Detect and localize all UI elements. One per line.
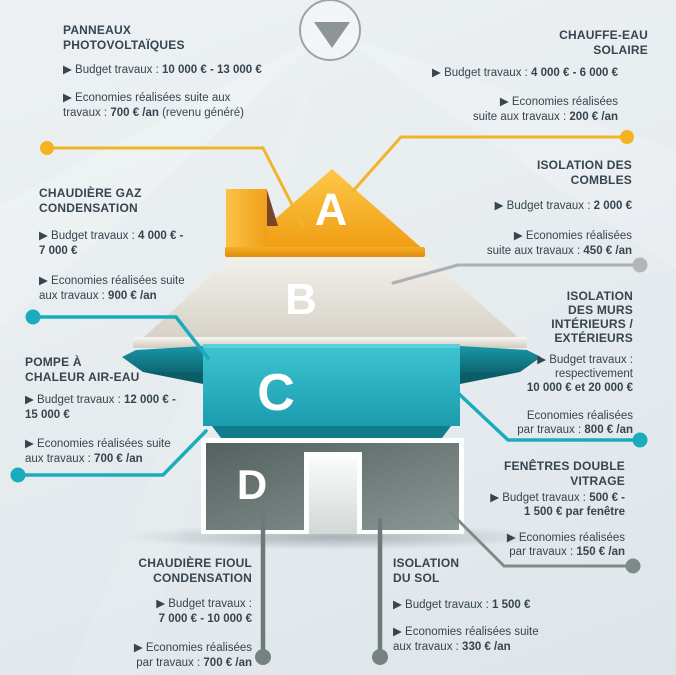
label-line: par travaux : 700 € /an — [134, 656, 252, 671]
dot-murs — [633, 433, 648, 448]
label-pompe-chaleur: POMPE À CHALEUR AIR-EAU ▶ Budget travaux… — [25, 355, 176, 467]
dot-pompe — [11, 468, 26, 483]
label-line: ▶ Economies réalisées suite — [25, 437, 176, 452]
label-line: suite aux travaux : 450 € /an — [487, 244, 632, 259]
grade-b-letter: B — [285, 275, 317, 324]
label-heading: CHAUDIÈRE FIOUL CONDENSATION — [134, 556, 252, 586]
label-line: ▶ Budget travaux : 1 500 € — [393, 598, 539, 613]
wall-c-base — [212, 426, 451, 438]
label-line: aux travaux : 700 € /an — [25, 452, 176, 467]
dot-panneaux — [40, 141, 54, 155]
label-chaudiere-fioul: CHAUDIÈRE FIOUL CONDENSATION ▶ Budget tr… — [134, 556, 252, 671]
label-heading: FENÊTRES DOUBLE VITRAGE — [490, 459, 625, 489]
door — [309, 457, 357, 534]
label-heading: POMPE À CHALEUR AIR-EAU — [25, 355, 176, 385]
label-line: ▶ Economies réalisées suite — [393, 625, 539, 640]
label-heading: ISOLATION DU SOL — [393, 556, 539, 586]
label-line: aux travaux : 900 € /an — [39, 289, 185, 304]
label-line: ▶ Budget travaux : 12 000 € - — [25, 393, 176, 408]
label-line: ▶ Economies réalisées — [490, 531, 625, 545]
grade-a-letter: A — [315, 184, 348, 235]
dot-fenetres — [626, 559, 641, 574]
wall-c-highlight — [203, 344, 460, 348]
label-fenetres-double-vitrage: FENÊTRES DOUBLE VITRAGE ▶ Budget travaux… — [490, 459, 625, 559]
label-line: travaux : 700 € /an (revenu généré) — [63, 106, 262, 121]
label-chauffe-eau-solaire: CHAUFFE-EAU SOLAIRE ▶ Budget travaux : 4… — [432, 28, 648, 125]
label-heading: ISOLATION DES COMBLES — [487, 158, 632, 188]
label-line: ▶ Budget travaux : — [517, 353, 633, 367]
label-line: par travaux : 800 € /an — [517, 423, 633, 437]
label-line: ▶ Economies réalisées suite — [39, 274, 185, 289]
label-heading: ISOLATION DES MURS INTÉRIEURS / EXTÉRIEU… — [517, 289, 633, 345]
label-line: aux travaux : 330 € /an — [393, 640, 539, 655]
label-line: ▶ Budget travaux : 4 000 € - 6 000 € — [432, 66, 618, 81]
label-line: suite aux travaux : 200 € /an — [432, 110, 618, 125]
chimney — [226, 189, 267, 250]
dot-chauffe-eau — [620, 130, 634, 144]
label-line: ▶ Budget travaux : — [134, 597, 252, 612]
label-line: respectivement — [517, 367, 633, 381]
label-line: ▶ Economies réalisées suite aux — [63, 91, 262, 106]
label-chaudiere-gaz: CHAUDIÈRE GAZ CONDENSATION ▶ Budget trav… — [39, 186, 185, 304]
label-line: ▶ Budget travaux : 500 € - — [490, 491, 625, 505]
label-heading: CHAUDIÈRE GAZ CONDENSATION — [39, 186, 185, 216]
label-line: ▶ Economies réalisées — [487, 229, 632, 244]
label-heading: PANNEAUX PHOTOVOLTAÏQUES — [63, 23, 262, 53]
eave-right-shadow — [460, 372, 520, 384]
label-line: 7 000 € — [39, 244, 185, 259]
grade-c-letter: C — [257, 364, 295, 422]
label-line: ▶ Budget travaux : 10 000 € - 13 000 € — [63, 63, 262, 78]
label-line: 7 000 € - 10 000 € — [134, 612, 252, 627]
label-isolation-murs: ISOLATION DES MURS INTÉRIEURS / EXTÉRIEU… — [517, 289, 633, 437]
label-line: 1 500 € par fenêtre — [490, 505, 625, 519]
dot-fioul — [255, 649, 271, 665]
label-isolation-sol: ISOLATION DU SOL ▶ Budget travaux : 1 50… — [393, 556, 539, 655]
roof-a-base — [225, 247, 425, 257]
label-line: ▶ Economies réalisées — [432, 95, 618, 110]
label-heading: CHAUFFE-EAU SOLAIRE — [432, 28, 648, 58]
label-panneaux-photovoltaiques: PANNEAUX PHOTOVOLTAÏQUES ▶ Budget travau… — [63, 23, 262, 121]
infographic-house-renovation: A B C D — [0, 0, 676, 675]
grade-d-letter: D — [237, 461, 267, 508]
label-line: ▶ Budget travaux : 2 000 € — [487, 199, 632, 214]
label-line: 15 000 € — [25, 408, 176, 423]
wall-c — [203, 344, 460, 426]
label-line: ▶ Economies réalisées — [134, 641, 252, 656]
dot-combles — [633, 258, 648, 273]
dot-sol — [372, 649, 388, 665]
roof-b — [143, 257, 519, 338]
label-line: Economies réalisées — [517, 409, 633, 423]
label-line: 10 000 € et 20 000 € — [517, 381, 633, 395]
label-line: ▶ Budget travaux : 4 000 € - — [39, 229, 185, 244]
dot-gaz — [26, 310, 41, 325]
label-isolation-combles: ISOLATION DES COMBLES ▶ Budget travaux :… — [487, 158, 632, 259]
scroll-down-indicator[interactable] — [300, 0, 360, 60]
